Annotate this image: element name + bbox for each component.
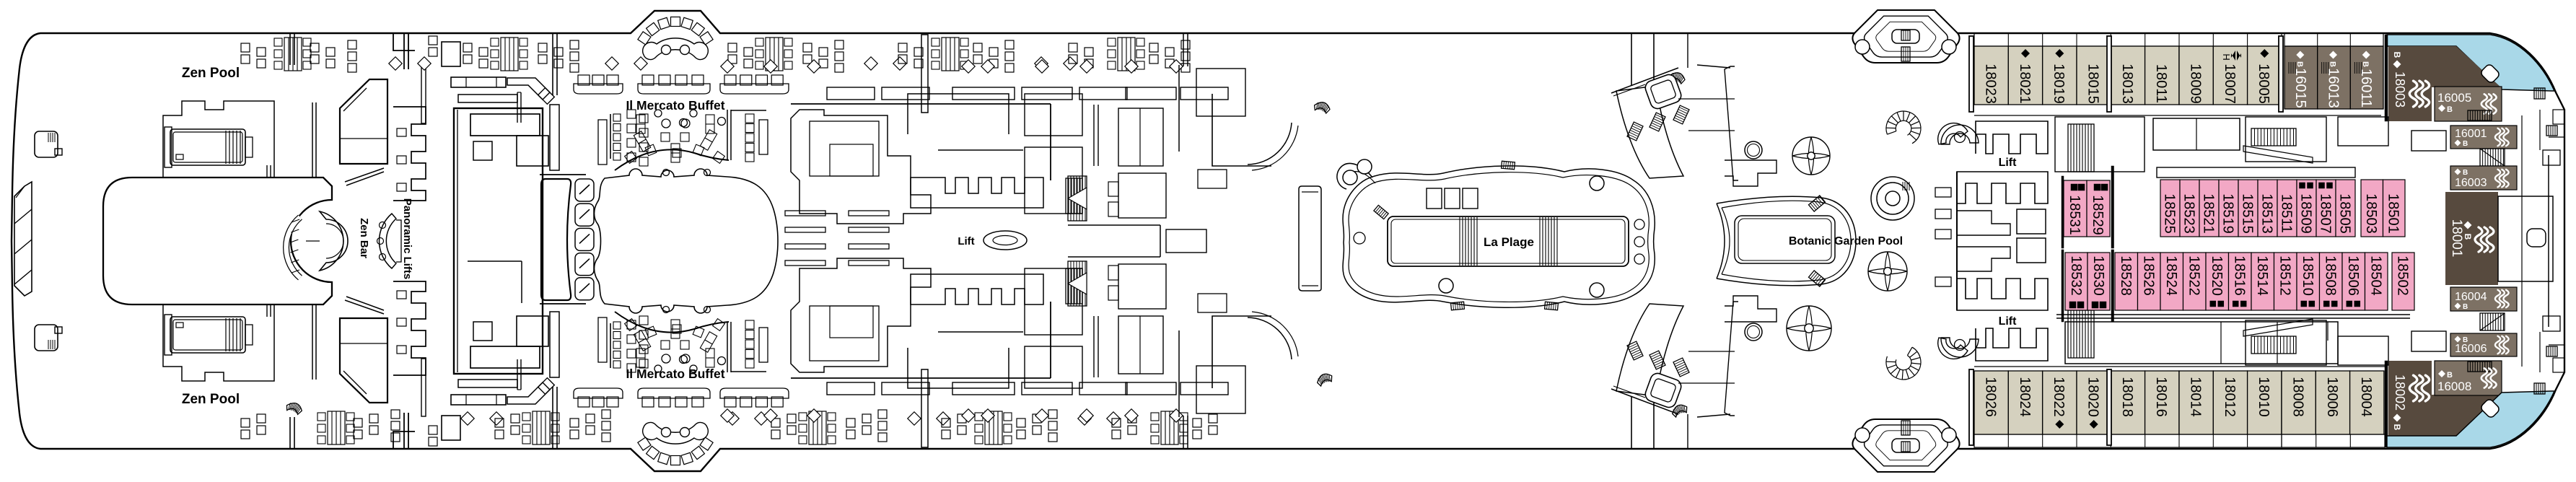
svg-text:18513: 18513 (2259, 193, 2275, 234)
svg-text:16011: 16011 (2358, 69, 2374, 108)
svg-text:18004: 18004 (2358, 377, 2374, 417)
svg-text:18012: 18012 (2222, 377, 2238, 417)
svg-text:18001: 18001 (2449, 219, 2464, 258)
svg-text:18525: 18525 (2162, 193, 2178, 234)
svg-text:18003: 18003 (2393, 71, 2407, 108)
svg-text:18016: 18016 (2153, 377, 2169, 417)
svg-text:Il Mercato Buffet: Il Mercato Buffet (626, 98, 724, 113)
svg-text:18013: 18013 (2119, 63, 2135, 104)
svg-text:B: B (2361, 61, 2370, 67)
svg-text:18526: 18526 (2140, 255, 2156, 296)
svg-text:18002: 18002 (2393, 374, 2407, 411)
svg-text:18515: 18515 (2240, 193, 2256, 234)
svg-text:18022: 18022 (2051, 377, 2067, 417)
svg-text:16015: 16015 (2292, 68, 2308, 108)
svg-text:Zen Pool: Zen Pool (182, 66, 240, 81)
svg-text:Il Mercato Buffet: Il Mercato Buffet (626, 367, 724, 381)
svg-text:16005: 16005 (2437, 91, 2471, 105)
svg-text:18020: 18020 (2085, 377, 2100, 417)
svg-text:18523: 18523 (2181, 193, 2197, 234)
svg-text:18011: 18011 (2153, 64, 2169, 103)
svg-text:H: H (2221, 53, 2232, 60)
svg-text:18530: 18530 (2090, 255, 2106, 296)
svg-text:18521: 18521 (2201, 193, 2217, 234)
svg-text:Lift: Lift (1999, 157, 2018, 169)
svg-text:Lift: Lift (958, 235, 974, 247)
svg-text:18514: 18514 (2254, 255, 2270, 296)
svg-text:18532: 18532 (2068, 255, 2084, 296)
svg-text:18507: 18507 (2318, 193, 2334, 234)
svg-text:18524: 18524 (2163, 255, 2179, 296)
svg-text:18010: 18010 (2256, 377, 2271, 417)
svg-text:18018: 18018 (2119, 377, 2135, 417)
svg-text:18531: 18531 (2067, 195, 2082, 235)
svg-text:16008: 16008 (2437, 380, 2471, 393)
svg-text:16013: 16013 (2326, 68, 2341, 108)
svg-text:La Plage: La Plage (1484, 235, 1534, 249)
svg-text:B: B (2392, 52, 2402, 58)
svg-text:B: B (2329, 61, 2337, 67)
svg-text:Zen Bar: Zen Bar (358, 218, 370, 258)
svg-text:18506: 18506 (2345, 255, 2361, 296)
svg-text:18005: 18005 (2256, 63, 2271, 104)
svg-text:18014: 18014 (2187, 377, 2203, 417)
svg-text:18529: 18529 (2090, 195, 2106, 235)
svg-text:18006: 18006 (2324, 377, 2340, 417)
svg-text:18510: 18510 (2300, 255, 2316, 296)
svg-text:B: B (2295, 61, 2304, 67)
svg-text:B: B (2447, 105, 2453, 114)
svg-text:18519: 18519 (2220, 193, 2236, 234)
svg-text:16004: 16004 (2455, 291, 2487, 303)
svg-text:18009: 18009 (2187, 63, 2203, 104)
svg-text:18520: 18520 (2209, 255, 2225, 296)
svg-text:18528: 18528 (2118, 255, 2134, 296)
svg-text:18023: 18023 (1982, 63, 1998, 104)
svg-text:16003: 16003 (2455, 177, 2487, 189)
svg-text:18502: 18502 (2395, 255, 2411, 296)
svg-text:18008: 18008 (2290, 377, 2305, 417)
svg-text:18516: 18516 (2231, 255, 2247, 296)
svg-text:18503: 18503 (2363, 193, 2379, 234)
svg-text:B: B (2463, 303, 2468, 311)
svg-text:16006: 16006 (2455, 343, 2487, 355)
svg-text:B: B (2392, 424, 2402, 431)
svg-text:18522: 18522 (2186, 255, 2202, 296)
svg-text:18021: 18021 (2017, 63, 2033, 104)
svg-text:B: B (2463, 169, 2468, 177)
svg-text:18509: 18509 (2298, 193, 2314, 234)
svg-text:B: B (2463, 140, 2468, 148)
svg-text:Lift: Lift (1999, 315, 2018, 328)
svg-text:18511: 18511 (2279, 194, 2295, 233)
svg-text:18019: 18019 (2051, 63, 2067, 104)
svg-text:Panoramic Lifts: Panoramic Lifts (401, 198, 413, 280)
svg-text:B: B (2447, 371, 2453, 380)
svg-text:18512: 18512 (2277, 255, 2292, 296)
svg-text:18501: 18501 (2386, 193, 2401, 234)
svg-text:16001: 16001 (2455, 128, 2487, 140)
svg-text:18508: 18508 (2322, 255, 2338, 296)
svg-text:18024: 18024 (2017, 377, 2033, 417)
svg-text:18015: 18015 (2085, 63, 2100, 104)
svg-text:18007: 18007 (2222, 63, 2238, 104)
svg-text:18505: 18505 (2337, 193, 2353, 234)
svg-text:Zen Pool: Zen Pool (182, 392, 240, 407)
svg-text:18026: 18026 (1982, 377, 1998, 417)
svg-text:Botanic Garden Pool: Botanic Garden Pool (1789, 235, 1903, 247)
svg-text:18504: 18504 (2367, 255, 2383, 296)
